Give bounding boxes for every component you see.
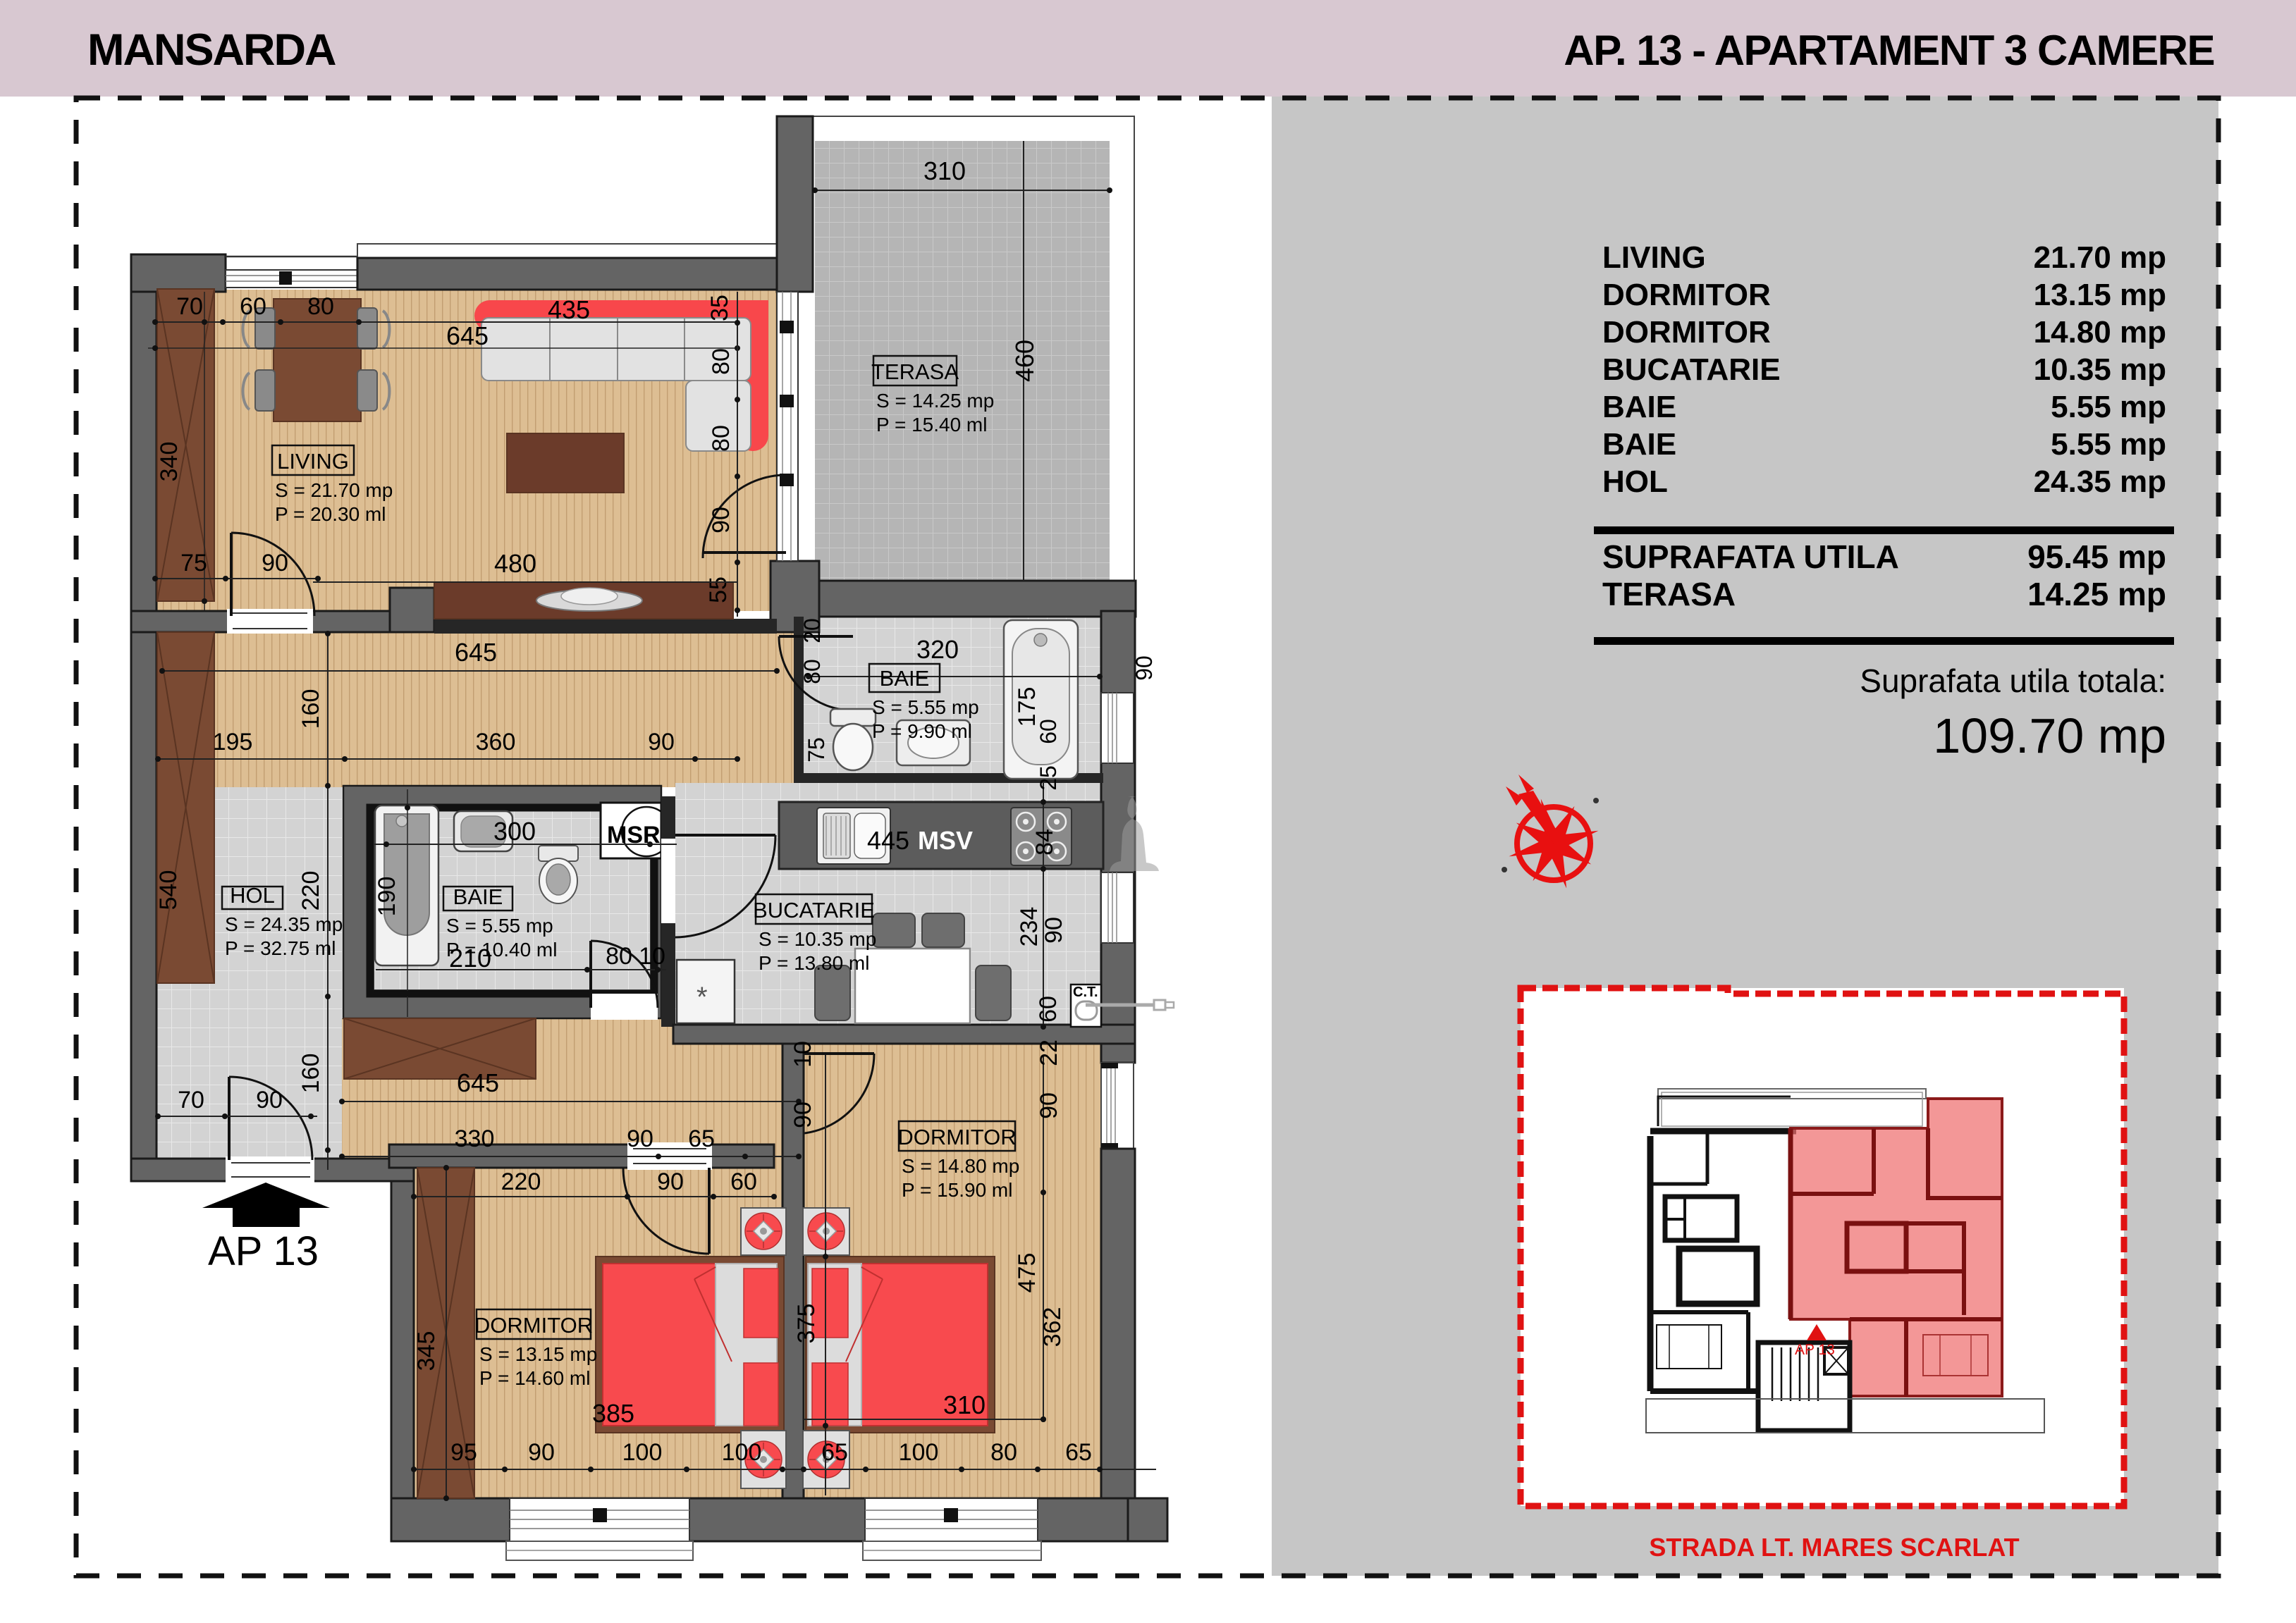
svg-text:60: 60 <box>1036 719 1061 744</box>
svg-text:TERASA: TERASA <box>1602 576 1736 612</box>
svg-text:310: 310 <box>943 1390 986 1419</box>
svg-text:35: 35 <box>706 295 733 321</box>
svg-text:345: 345 <box>413 1331 440 1371</box>
svg-text:S = 5.55 mp: S = 5.55 mp <box>446 915 553 937</box>
svg-text:645: 645 <box>457 1068 499 1097</box>
svg-text:P = 10.40 ml: P = 10.40 ml <box>446 939 557 961</box>
svg-text:BAIE: BAIE <box>1602 427 1676 462</box>
svg-text:90: 90 <box>790 1101 816 1128</box>
svg-text:90: 90 <box>1040 917 1067 944</box>
svg-text:300: 300 <box>493 817 536 846</box>
svg-text:60: 60 <box>730 1168 757 1195</box>
svg-text:20: 20 <box>799 618 825 643</box>
svg-text:90: 90 <box>1036 1092 1062 1119</box>
svg-text:10.35 mp: 10.35 mp <box>2034 352 2166 387</box>
svg-text:90: 90 <box>256 1087 283 1113</box>
svg-text:DORMITOR: DORMITOR <box>897 1125 1016 1149</box>
svg-text:234: 234 <box>1016 907 1043 947</box>
svg-text:80: 80 <box>708 425 735 452</box>
svg-text:DORMITOR: DORMITOR <box>1602 278 1771 312</box>
svg-text:5.55 mp: 5.55 mp <box>2051 390 2166 424</box>
svg-text:22: 22 <box>1036 1039 1062 1066</box>
svg-text:*: * <box>696 982 708 1013</box>
svg-text:C.T.: C.T. <box>1073 985 1098 1000</box>
svg-text:190: 190 <box>374 877 400 917</box>
svg-text:160: 160 <box>297 689 324 729</box>
svg-text:LIVING: LIVING <box>277 449 349 474</box>
svg-text:BAIE: BAIE <box>880 666 930 691</box>
svg-text:645: 645 <box>446 321 489 350</box>
svg-text:330: 330 <box>455 1125 495 1152</box>
svg-text:80: 80 <box>307 293 334 320</box>
svg-text:65: 65 <box>1065 1439 1092 1466</box>
svg-text:BAIE: BAIE <box>1602 390 1676 424</box>
svg-text:220: 220 <box>297 871 324 911</box>
svg-text:BUCATARIE: BUCATARIE <box>1602 352 1781 387</box>
svg-text:AP 13: AP 13 <box>1795 1342 1835 1358</box>
svg-text:HOL: HOL <box>1602 464 1668 499</box>
svg-text:375: 375 <box>793 1304 820 1344</box>
svg-text:MSV: MSV <box>918 826 973 855</box>
svg-text:S = 14.25 mp: S = 14.25 mp <box>876 390 994 412</box>
svg-text:435: 435 <box>548 295 590 324</box>
svg-text:S = 13.15 mp: S = 13.15 mp <box>479 1343 597 1365</box>
svg-text:385: 385 <box>592 1399 634 1428</box>
svg-text:460: 460 <box>1010 340 1039 382</box>
svg-text:55: 55 <box>705 576 732 603</box>
svg-text:95: 95 <box>450 1439 477 1466</box>
svg-text:60: 60 <box>1035 996 1062 1023</box>
svg-text:80: 80 <box>708 348 735 375</box>
svg-text:P = 15.40 ml: P = 15.40 ml <box>876 414 987 436</box>
svg-text:90: 90 <box>648 729 675 755</box>
svg-text:DORMITOR: DORMITOR <box>1602 315 1771 350</box>
svg-text:195: 195 <box>213 729 253 755</box>
svg-text:310: 310 <box>923 156 966 185</box>
svg-text:100: 100 <box>899 1439 939 1466</box>
svg-text:90: 90 <box>1131 655 1157 681</box>
svg-text:P = 20.30 ml: P = 20.30 ml <box>275 503 386 525</box>
svg-text:90: 90 <box>528 1439 555 1466</box>
svg-text:BAIE: BAIE <box>453 884 503 909</box>
svg-text:445: 445 <box>867 826 909 855</box>
svg-text:480: 480 <box>494 549 536 578</box>
svg-text:320: 320 <box>916 635 959 664</box>
svg-text:10: 10 <box>790 1041 816 1068</box>
svg-text:S = 10.35 mp: S = 10.35 mp <box>759 928 876 950</box>
svg-text:SUPRAFATA UTILA: SUPRAFATA UTILA <box>1602 538 1899 575</box>
svg-text:P = 15.90 ml: P = 15.90 ml <box>902 1179 1012 1201</box>
svg-text:100: 100 <box>622 1439 663 1466</box>
svg-text:75: 75 <box>804 737 829 763</box>
svg-text:109.70 mp: 109.70 mp <box>1933 708 2166 763</box>
svg-text:90: 90 <box>627 1125 653 1152</box>
svg-text:65: 65 <box>688 1125 715 1152</box>
svg-text:S = 14.80 mp: S = 14.80 mp <box>902 1155 1019 1177</box>
svg-text:BUCATARIE: BUCATARIE <box>753 898 875 922</box>
svg-text:90: 90 <box>708 507 735 533</box>
svg-text:14.80 mp: 14.80 mp <box>2034 315 2166 350</box>
svg-text:84: 84 <box>1031 829 1058 856</box>
svg-text:HOL: HOL <box>230 883 275 908</box>
svg-text:80: 80 <box>990 1439 1017 1466</box>
svg-text:P = 14.60 ml: P = 14.60 ml <box>479 1367 590 1389</box>
svg-text:160: 160 <box>297 1054 324 1094</box>
svg-text:S = 5.55 mp: S = 5.55 mp <box>872 696 979 718</box>
svg-text:340: 340 <box>156 442 183 482</box>
svg-text:220: 220 <box>501 1168 541 1195</box>
svg-text:100: 100 <box>722 1439 762 1466</box>
svg-text:24.35 mp: 24.35 mp <box>2034 464 2166 499</box>
svg-text:TERASA: TERASA <box>871 359 959 384</box>
svg-text:21.70 mp: 21.70 mp <box>2034 240 2166 275</box>
svg-text:360: 360 <box>476 729 516 755</box>
svg-text:LIVING: LIVING <box>1602 240 1706 275</box>
svg-text:475: 475 <box>1014 1253 1040 1293</box>
svg-text:5.55 mp: 5.55 mp <box>2051 427 2166 462</box>
svg-text:70: 70 <box>178 1087 204 1113</box>
svg-text:25: 25 <box>1036 765 1061 791</box>
svg-text:75: 75 <box>180 550 207 576</box>
svg-text:AP. 13 - APARTAMENT 3 CAMERE: AP. 13 - APARTAMENT 3 CAMERE <box>1564 27 2214 74</box>
svg-text:90: 90 <box>657 1168 684 1195</box>
svg-text:13.15 mp: 13.15 mp <box>2034 278 2166 312</box>
svg-text:DORMITOR: DORMITOR <box>474 1313 593 1338</box>
svg-text:Suprafata utila totala:: Suprafata utila totala: <box>1860 662 2166 699</box>
svg-text:80: 80 <box>606 943 632 970</box>
svg-text:MANSARDA: MANSARDA <box>87 25 336 75</box>
svg-text:645: 645 <box>455 638 497 667</box>
svg-text:STRADA LT. MARES SCARLAT: STRADA LT. MARES SCARLAT <box>1649 1533 2019 1562</box>
svg-text:P = 9.90 ml: P = 9.90 ml <box>872 720 972 742</box>
svg-text:80: 80 <box>799 659 825 684</box>
svg-text:362: 362 <box>1039 1307 1066 1347</box>
svg-text:S = 24.35 mp: S = 24.35 mp <box>225 913 343 935</box>
svg-text:90: 90 <box>262 550 288 576</box>
svg-text:AP 13: AP 13 <box>208 1228 319 1274</box>
svg-text:95.45 mp: 95.45 mp <box>2027 538 2166 575</box>
svg-text:540: 540 <box>155 870 182 911</box>
svg-text:P = 32.75 ml: P = 32.75 ml <box>225 937 336 959</box>
svg-text:S = 21.70 mp: S = 21.70 mp <box>275 479 393 501</box>
svg-text:60: 60 <box>240 293 266 320</box>
svg-text:14.25 mp: 14.25 mp <box>2027 576 2166 612</box>
svg-text:70: 70 <box>176 293 203 320</box>
svg-text:P = 13.80 ml: P = 13.80 ml <box>759 952 869 974</box>
svg-text:10: 10 <box>639 943 665 970</box>
